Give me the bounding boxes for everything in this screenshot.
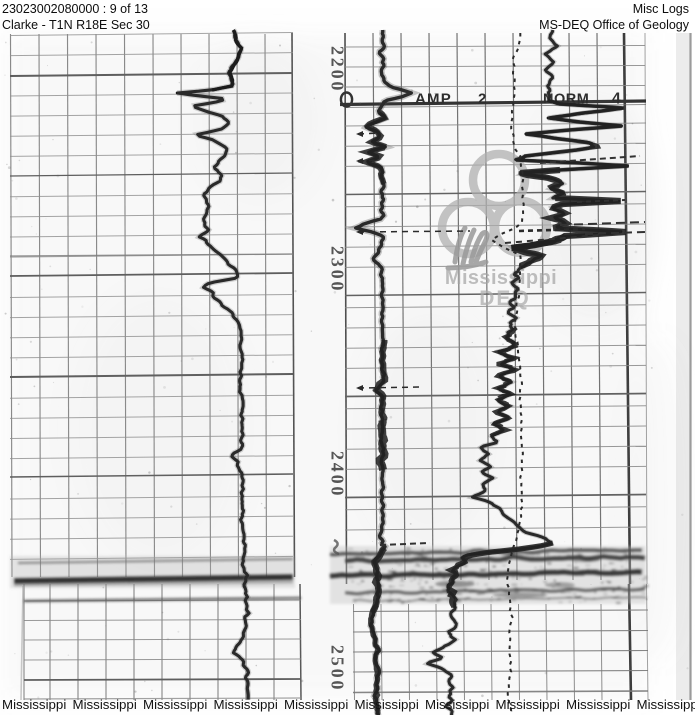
svg-text:2300: 2300 xyxy=(328,246,348,293)
svg-text:2: 2 xyxy=(478,91,486,108)
svg-text:2400: 2400 xyxy=(328,451,348,498)
svg-text:Mississippi: Mississippi xyxy=(445,267,557,289)
svg-text:2500: 2500 xyxy=(328,645,348,692)
svg-text:AMP: AMP xyxy=(415,91,452,108)
svg-text:2200: 2200 xyxy=(328,46,348,93)
svg-text:4: 4 xyxy=(612,91,621,108)
svg-text:DEQ: DEQ xyxy=(479,287,531,310)
